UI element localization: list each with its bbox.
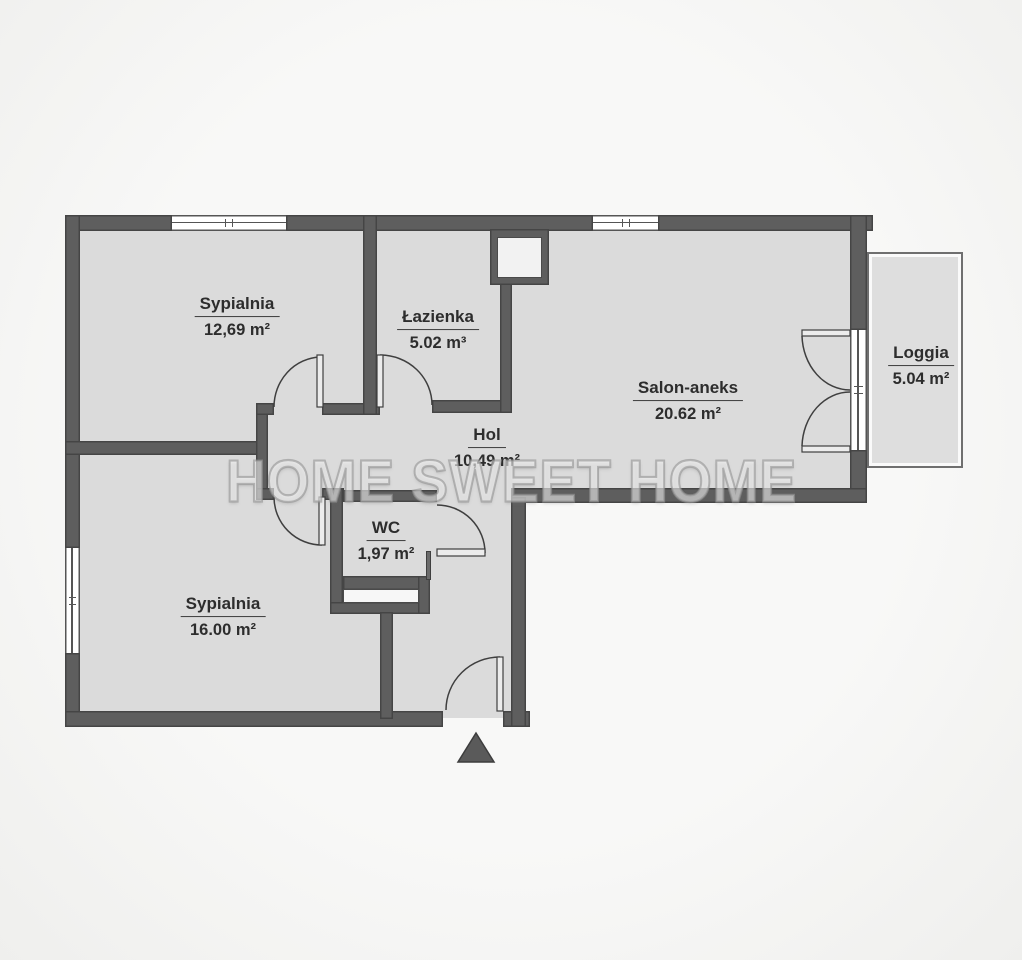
door-arc-bathroom — [380, 355, 432, 405]
door-leaf-entrance — [497, 657, 503, 711]
door-leaf-bathroom — [377, 355, 383, 407]
room-label-salon: Salon-aneks 20.62 m² — [633, 377, 743, 425]
room-name: Łazienka — [397, 306, 479, 330]
door-leaf-wc — [437, 549, 485, 556]
door-arc-bedroom-1 — [274, 357, 320, 407]
room-label-loggia: Loggia 5.04 m² — [888, 342, 954, 390]
watermark-text: HOME SWEET HOME — [226, 446, 797, 515]
room-label-bathroom: Łazienka 5.02 m³ — [397, 306, 479, 354]
door-arc-loggia-bottom — [802, 392, 850, 446]
door-leaf-loggia-top — [802, 330, 850, 336]
door-arc-loggia-top — [802, 336, 850, 390]
door-arc-entrance — [446, 657, 500, 710]
room-name: Hol — [468, 424, 505, 448]
room-area: 16.00 m² — [181, 617, 266, 641]
room-name: WC — [367, 517, 405, 541]
room-name: Loggia — [888, 342, 954, 366]
room-area: 1,97 m² — [358, 541, 415, 565]
room-area: 5.04 m² — [888, 366, 954, 390]
floor-plan: Sypialnia 12,69 m² Łazienka 5.02 m³ Hol … — [0, 0, 1022, 960]
room-label-bedroom-2: Sypialnia 16.00 m² — [181, 593, 266, 641]
room-name: Sypialnia — [195, 293, 280, 317]
room-name: Sypialnia — [181, 593, 266, 617]
room-area: 20.62 m² — [633, 401, 743, 425]
room-area: 5.02 m³ — [397, 330, 479, 354]
room-name: Salon-aneks — [633, 377, 743, 401]
room-area: 12,69 m² — [195, 317, 280, 341]
room-label-bedroom-1: Sypialnia 12,69 m² — [195, 293, 280, 341]
door-leaf-bedroom-1 — [317, 355, 323, 407]
entrance-marker-icon — [458, 733, 494, 762]
room-label-wc: WC 1,97 m² — [358, 517, 415, 565]
door-leaf-loggia-bottom — [802, 446, 850, 452]
